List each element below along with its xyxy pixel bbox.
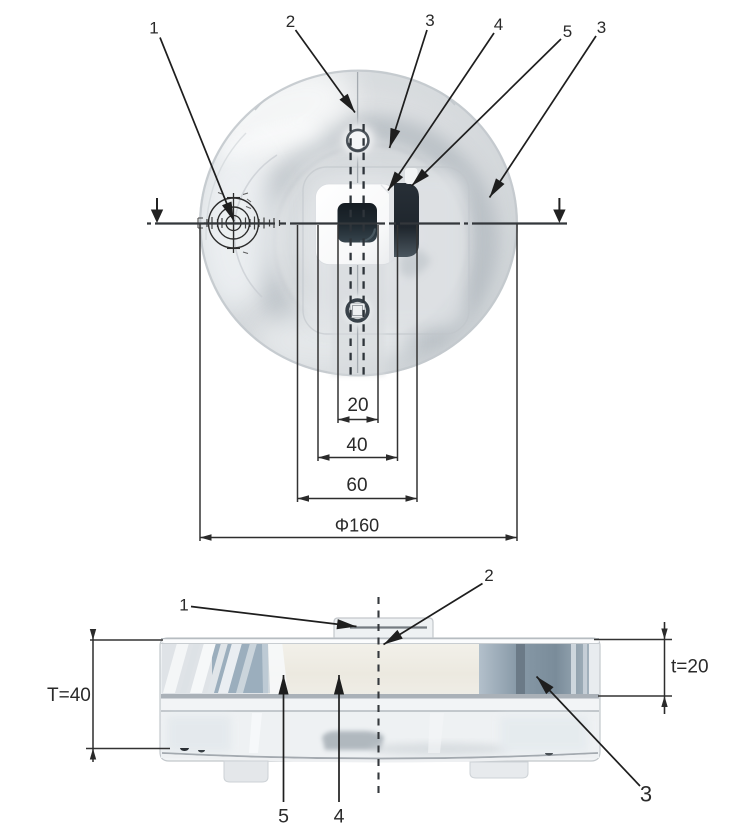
svg-text:60: 60: [346, 475, 367, 496]
svg-text:1: 1: [149, 19, 158, 38]
svg-text:2: 2: [286, 12, 295, 31]
svg-text:1: 1: [179, 596, 188, 615]
svg-text:5: 5: [278, 806, 289, 828]
svg-text:Φ160: Φ160: [335, 516, 379, 536]
svg-text:4: 4: [334, 806, 345, 828]
svg-text:5: 5: [563, 22, 572, 41]
svg-text:2: 2: [484, 566, 493, 585]
svg-text:40: 40: [346, 435, 367, 456]
svg-text:3: 3: [425, 11, 434, 30]
svg-text:3: 3: [597, 18, 606, 37]
svg-text:3: 3: [640, 782, 652, 807]
svg-text:20: 20: [347, 395, 368, 416]
svg-text:T=40: T=40: [47, 685, 91, 706]
svg-text:4: 4: [494, 15, 503, 34]
svg-text:t=20: t=20: [671, 657, 709, 678]
